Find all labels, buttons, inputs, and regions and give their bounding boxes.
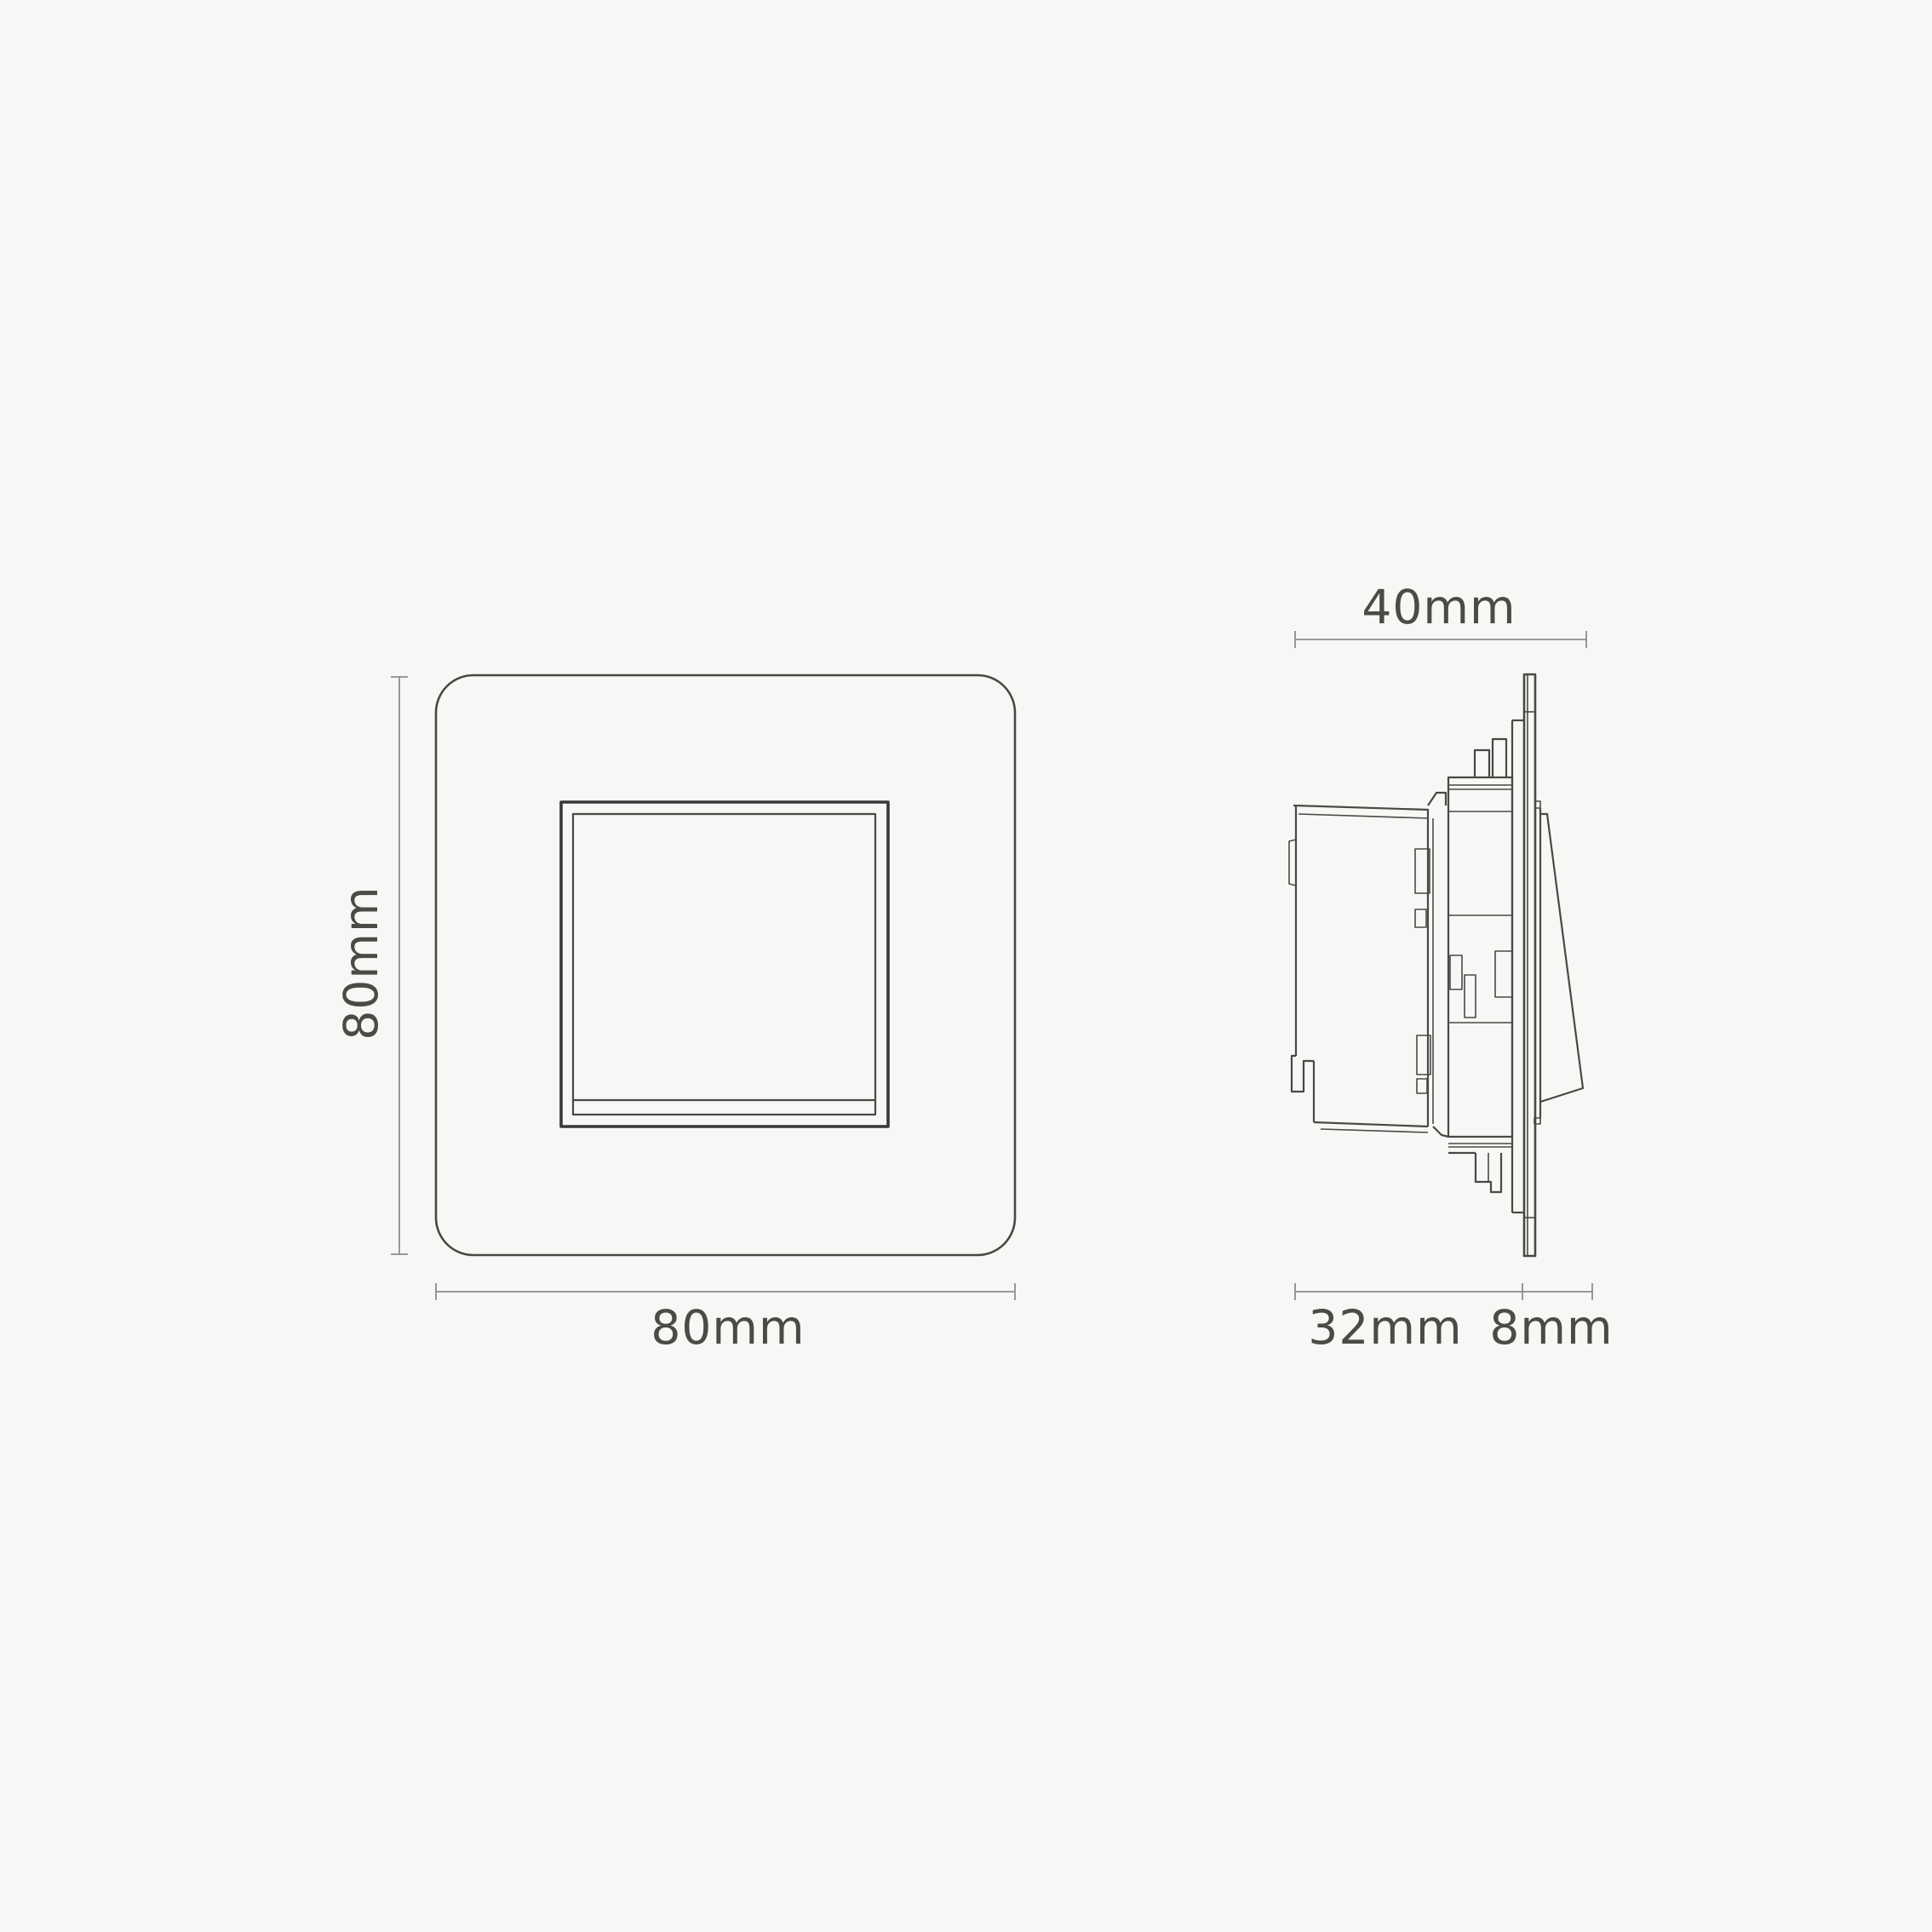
side-recess-label: 32mm [1308,1300,1462,1355]
side-depth-label: 40mm [1362,580,1516,634]
switch-dimension-diagram: 80mm 80mm 40mm 32mm 8mm [0,0,1932,1932]
diagram-canvas: 80mm 80mm 40mm 32mm 8mm [0,0,1932,1932]
front-height-label: 80mm [334,886,388,1040]
front-width-label: 80mm [651,1300,805,1355]
background [0,0,1932,1932]
side-protrusion-label: 8mm [1489,1300,1613,1355]
